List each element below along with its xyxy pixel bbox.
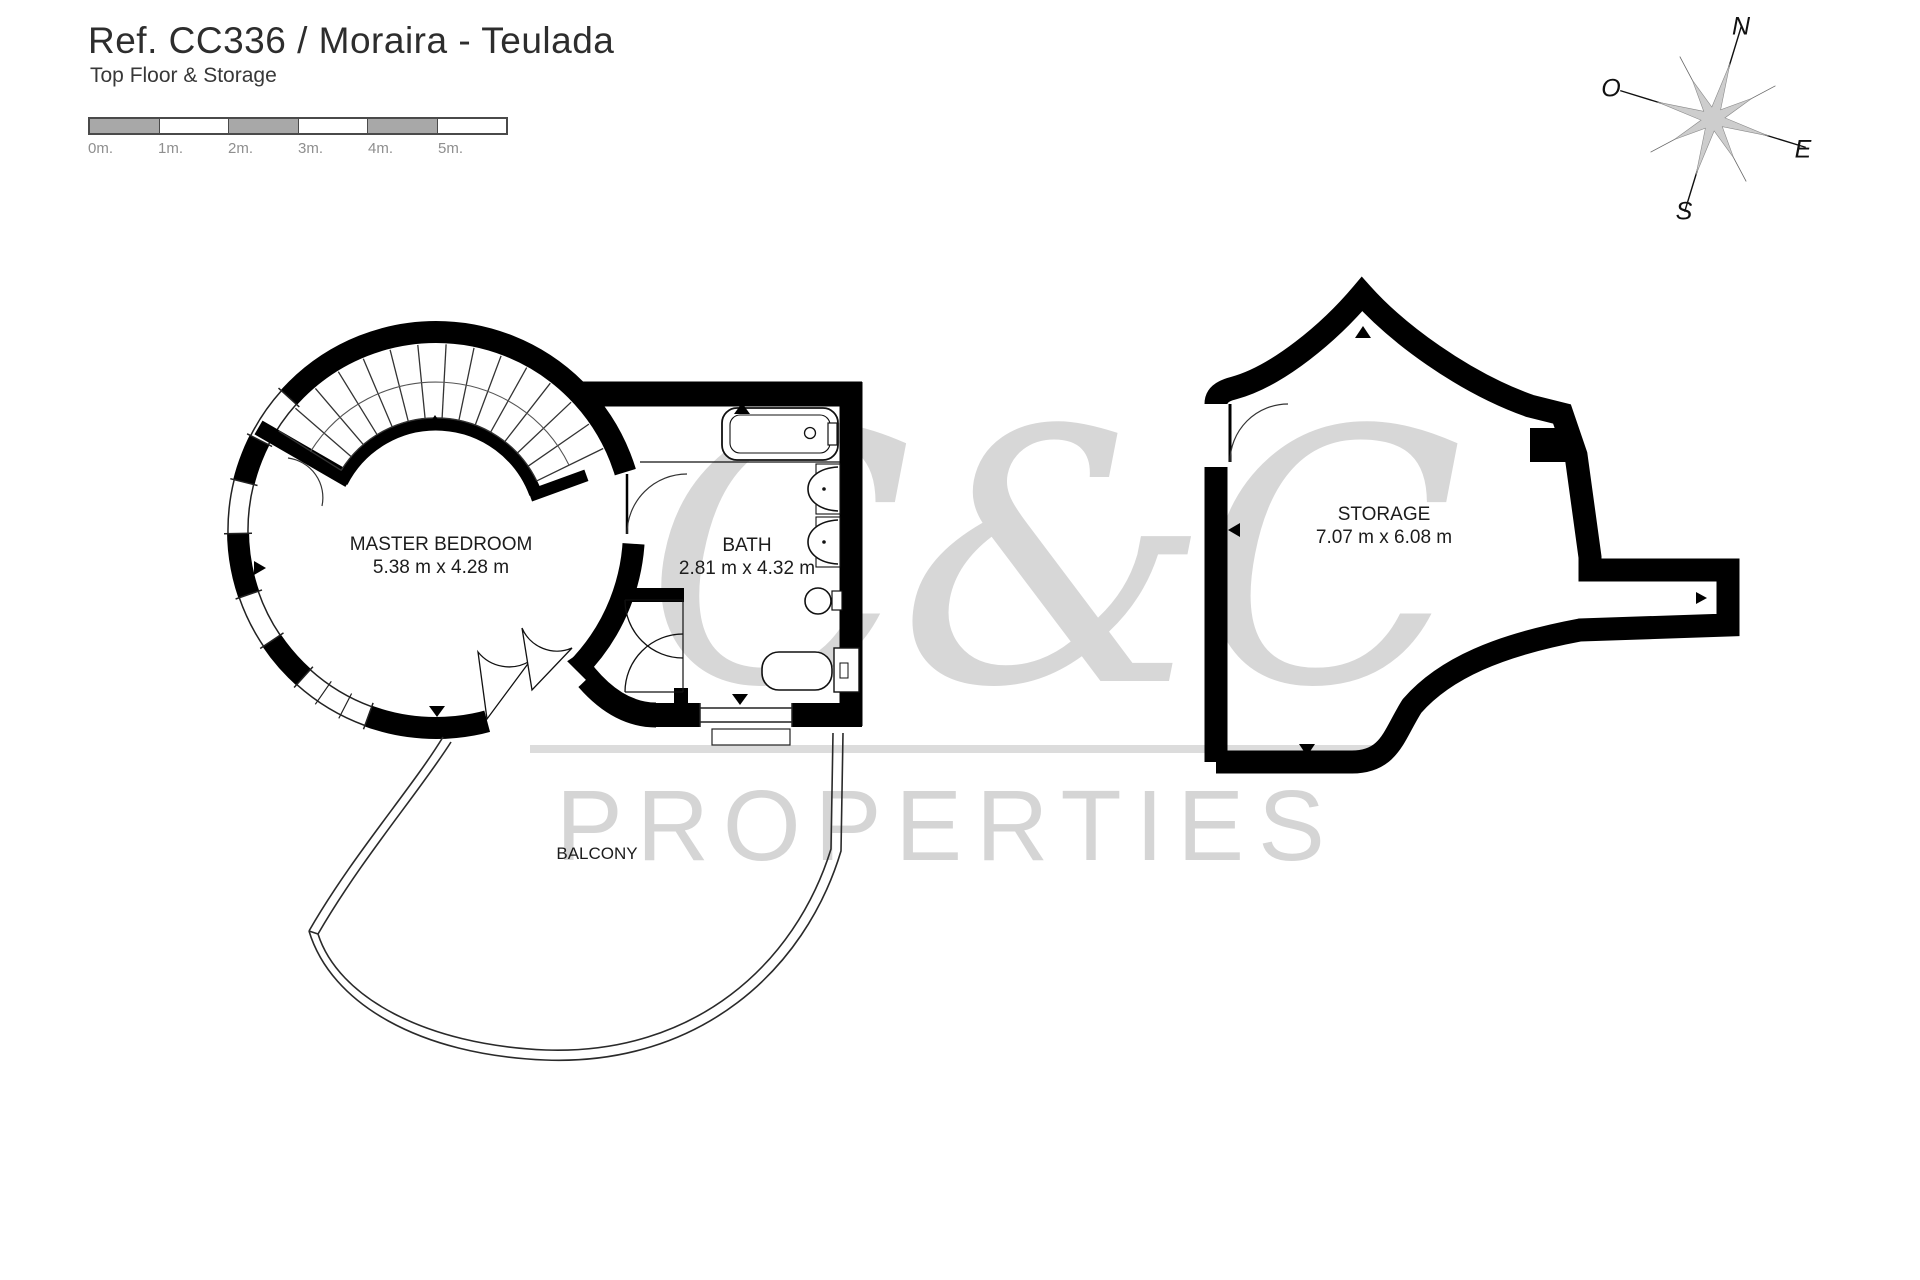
wall-opening — [249, 595, 272, 641]
room-dimensions: 2.81 m x 4.32 m — [679, 557, 815, 580]
compass-label-north: N — [1732, 13, 1750, 42]
wall-marker-icon — [254, 561, 266, 575]
balcony-railing — [309, 733, 843, 1060]
stair-tread — [363, 359, 392, 427]
compass-label-west: O — [1601, 75, 1620, 104]
stair-tread — [505, 383, 551, 441]
wall-opening — [304, 677, 369, 716]
storage-wall-notch — [1530, 428, 1579, 462]
master-bedroom-walls — [224, 332, 634, 729]
compass-label-south: S — [1676, 198, 1693, 227]
bedroom-circular-wall — [238, 332, 634, 728]
scale-label: 4m. — [368, 140, 393, 157]
scale-segment — [160, 119, 230, 133]
floorplan-page: C&C PROPERTIES — [0, 0, 1920, 1280]
page-subtitle: Top Floor & Storage — [90, 64, 277, 88]
page-title: Ref. CC336 / Moraira - Teulada — [88, 20, 614, 62]
compass-label-east: E — [1795, 136, 1812, 165]
room-name: STORAGE — [1316, 503, 1452, 526]
scale-label: 1m. — [158, 140, 183, 157]
storage-room-walls — [1216, 294, 1728, 762]
sink — [808, 464, 840, 514]
scale-label: 5m. — [438, 140, 463, 157]
wall-opening — [238, 482, 244, 533]
stair-tread — [418, 345, 425, 419]
bath-window — [700, 694, 792, 745]
floorplan-drawing — [0, 0, 1920, 1280]
north-marker-icon — [1355, 326, 1371, 338]
stair-tread — [475, 356, 501, 425]
toilet — [805, 588, 842, 614]
bathtub — [722, 403, 838, 460]
room-label-bath: BATH 2.81 m x 4.32 m — [679, 534, 815, 580]
scale-segment — [438, 119, 507, 133]
scale-bar — [88, 117, 508, 135]
compass-star-icon — [1641, 47, 1786, 192]
stair-tread — [442, 344, 446, 418]
bath-closet-doors — [625, 600, 683, 692]
stair-tread — [315, 388, 363, 444]
scale-segment — [229, 119, 299, 133]
scale-label: 2m. — [228, 140, 253, 157]
room-name: BATH — [679, 534, 815, 557]
room-dimensions: 7.07 m x 6.08 m — [1316, 526, 1452, 549]
stair-tread — [517, 402, 571, 453]
stair-side-wall — [259, 428, 350, 481]
compass-rose — [1592, 0, 1834, 240]
room-label-storage: STORAGE 7.07 m x 6.08 m — [1316, 503, 1452, 549]
scale-segment — [299, 119, 369, 133]
room-name: MASTER BEDROOM — [350, 533, 533, 556]
window-jamb — [224, 533, 252, 534]
scale-segment — [90, 119, 160, 133]
wall-marker-icon — [1228, 523, 1240, 537]
scale-label: 0m. — [88, 140, 113, 157]
room-label-master-bedroom: MASTER BEDROOM 5.38 m x 4.28 m — [350, 533, 533, 579]
bidet — [762, 648, 859, 692]
stair-inner-wall — [342, 424, 536, 494]
wall-marker-icon — [429, 706, 445, 717]
stair-tread — [491, 368, 527, 433]
scale-segment — [368, 119, 438, 133]
room-label-balcony: BALCONY — [556, 844, 637, 864]
wall-marker-icon — [1696, 592, 1707, 604]
scale-label: 3m. — [298, 140, 323, 157]
stair-tread — [338, 372, 377, 435]
storage-door — [1230, 404, 1288, 462]
room-dimensions: 5.38 m x 4.28 m — [350, 556, 533, 579]
